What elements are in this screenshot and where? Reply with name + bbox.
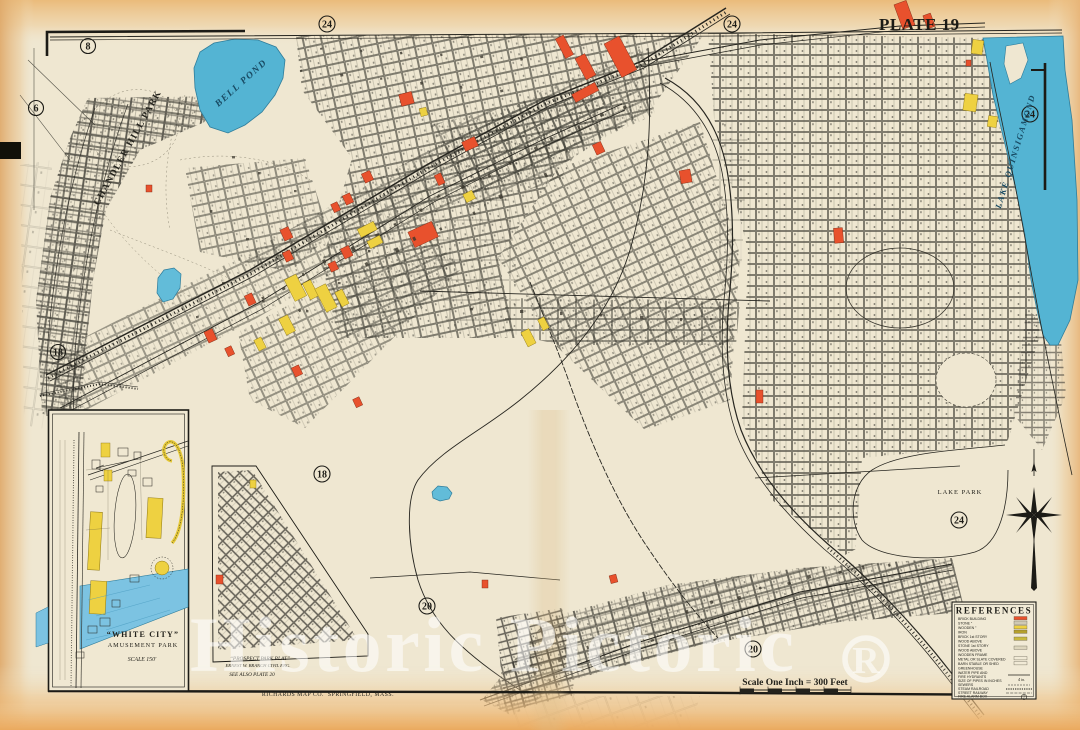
svg-text:BARN STABLE OR SHED: BARN STABLE OR SHED — [958, 662, 999, 666]
svg-text:FIRE ALARM BOX: FIRE ALARM BOX — [958, 695, 988, 699]
svg-text:IRON: IRON — [958, 631, 967, 635]
svg-text:24: 24 — [322, 20, 332, 31]
svg-text:WOODEN FRAME: WOODEN FRAME — [958, 653, 988, 657]
svg-text:WOODEN ”: WOODEN ” — [958, 626, 977, 630]
svg-text:WOOD ABOVE: WOOD ABOVE — [958, 649, 983, 653]
svg-text:8: 8 — [86, 42, 91, 53]
svg-text:RICHARDS MAP CO. SPRINGFIELD,: RICHARDS MAP CO. SPRINGFIELD, MASS. — [262, 692, 394, 698]
svg-text:BRICK BUILDING: BRICK BUILDING — [958, 617, 986, 621]
svg-text:4 in.: 4 in. — [1018, 677, 1025, 682]
svg-text:6: 6 — [34, 104, 39, 115]
svg-text:PLATE 19: PLATE 19 — [879, 15, 960, 34]
svg-text:SCALE 150': SCALE 150' — [128, 657, 157, 663]
svg-text:STONE 1st STORY: STONE 1st STORY — [958, 644, 989, 648]
svg-text:LAKE PARK: LAKE PARK — [938, 489, 983, 496]
svg-text:Historic Pictoric: Historic Pictoric — [190, 601, 797, 688]
svg-text:7: 7 — [1023, 695, 1025, 700]
svg-text:18: 18 — [317, 470, 327, 481]
svg-text:“WHITE CITY”: “WHITE CITY” — [107, 630, 179, 639]
svg-text:REFERENCES: REFERENCES — [956, 606, 1033, 616]
svg-text:R: R — [852, 640, 880, 682]
svg-text:METAL OR SLATE COVERED: METAL OR SLATE COVERED — [958, 658, 1006, 662]
svg-text:STONE ”: STONE ” — [958, 622, 973, 626]
svg-text:24: 24 — [954, 516, 964, 527]
svg-text:18: 18 — [53, 348, 63, 359]
svg-text:24: 24 — [727, 20, 737, 31]
svg-text:BRICK 1st STORY: BRICK 1st STORY — [958, 635, 988, 639]
svg-text:WOOD ABOVE: WOOD ABOVE — [958, 640, 983, 644]
svg-text:AMUSEMENT PARK: AMUSEMENT PARK — [108, 642, 179, 649]
svg-text:GREENHOUSE: GREENHOUSE — [958, 667, 984, 671]
